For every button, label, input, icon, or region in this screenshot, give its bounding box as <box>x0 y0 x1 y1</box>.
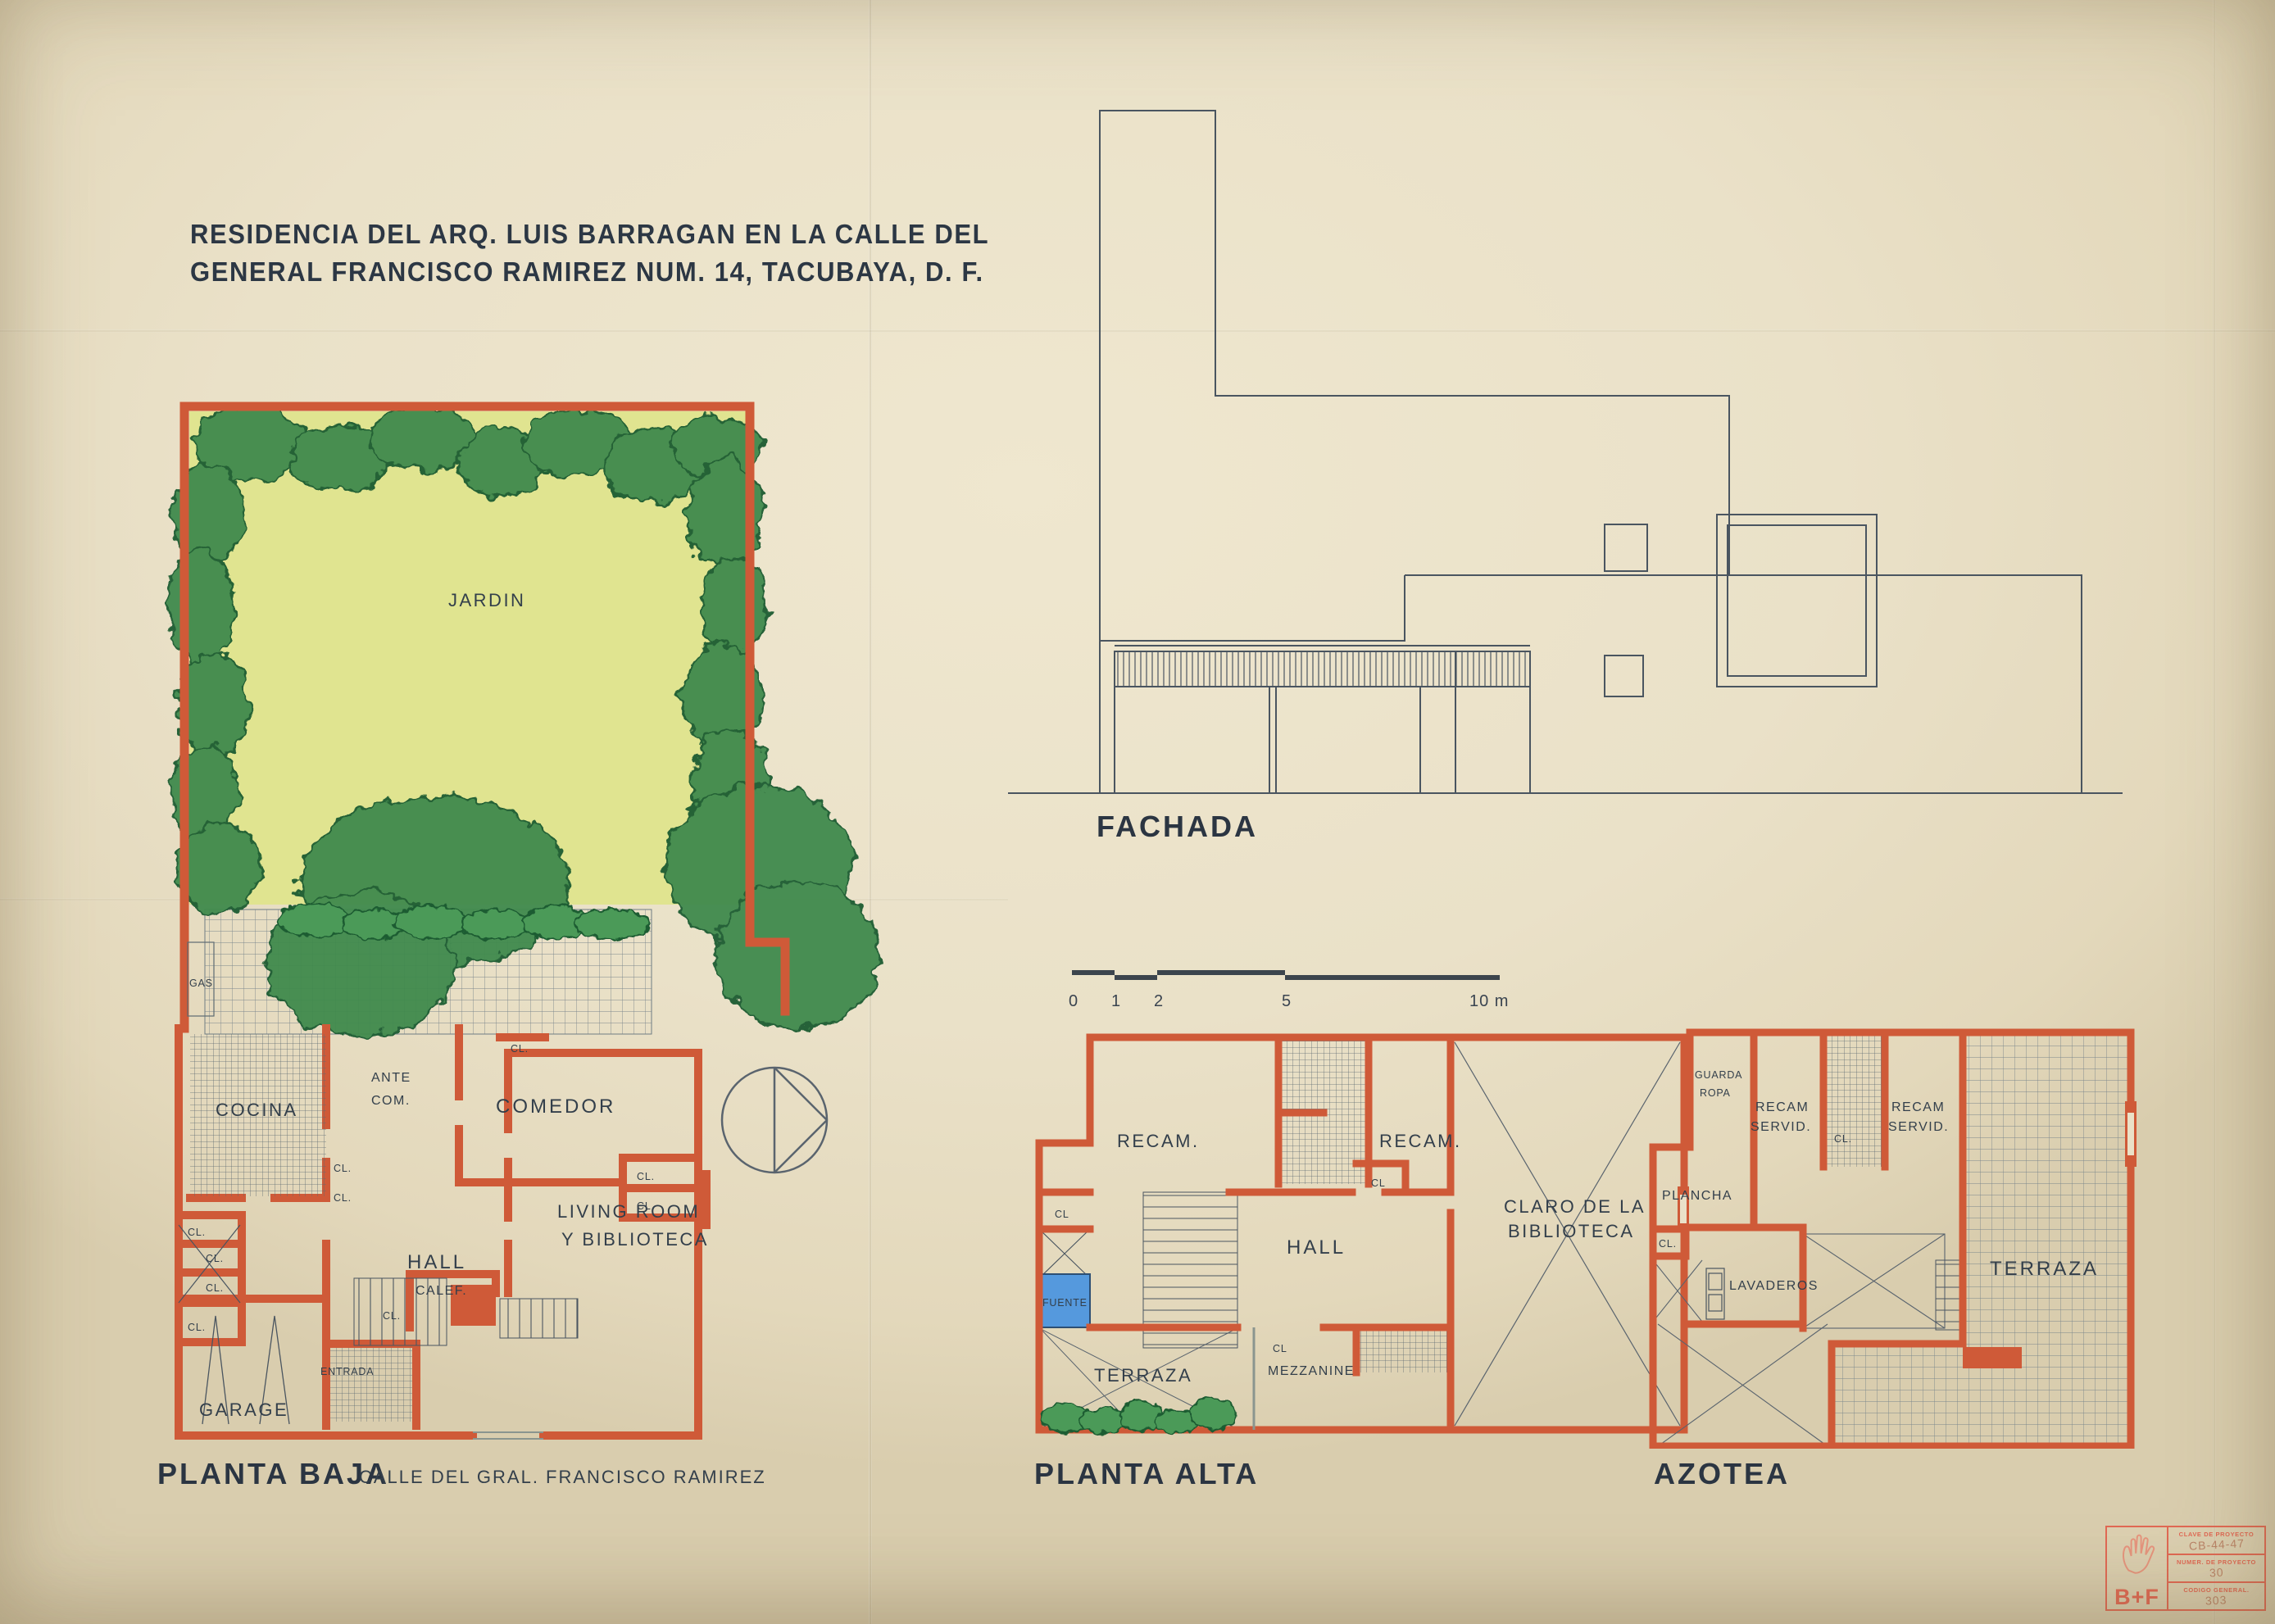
room-label-hall: HALL <box>407 1251 466 1273</box>
room-label-claro: BIBLIOTECA <box>1508 1221 1635 1241</box>
chimney-block <box>1963 1347 2022 1368</box>
large-window <box>1717 515 1877 687</box>
architect-stamp: B+F CLAVE DE PROYECTO CB-44-47 NUMER. DE… <box>2105 1526 2266 1611</box>
closet-label: CL. <box>188 1322 206 1333</box>
closet-label: CL. <box>334 1163 352 1174</box>
room-label-living: Y BIBLIOTECA <box>561 1229 709 1250</box>
scale-tick: 10 m <box>1469 992 1509 1010</box>
closet-label: CL. <box>206 1253 224 1264</box>
stamp-row: NUMER. DE PROYECTO 30 <box>2168 1555 2264 1583</box>
room-label-hall: HALL <box>1287 1236 1346 1259</box>
scale-tick: 2 <box>1154 992 1164 1010</box>
facade-outline <box>1100 111 2082 793</box>
room-label-guardaropa: GUARDA <box>1695 1069 1742 1081</box>
stamp-logo-cell: B+F <box>2107 1527 2168 1609</box>
room-label-claro: CLARO DE LA <box>1504 1196 1646 1217</box>
bath-hatch <box>1823 1036 1885 1167</box>
stamp-row: CODIGO GENERAL. 303 <box>2168 1583 2264 1609</box>
closet-label: CL <box>1371 1177 1386 1189</box>
roof-terrace-paving <box>1832 1347 1963 1443</box>
closet-label: CL. <box>637 1200 655 1212</box>
room-label-recam-servid: SERVID. <box>1751 1120 1811 1134</box>
entrada-floor-hatch <box>330 1348 412 1422</box>
fence-and-garage-doors <box>1115 646 1530 793</box>
room-label-comedor: COMEDOR <box>496 1096 615 1118</box>
stair <box>1936 1260 1962 1330</box>
room-label-mezzanine: MEZZANINE <box>1268 1364 1355 1378</box>
closet-label: CL. <box>334 1192 352 1204</box>
roof-plan: GUARDA ROPA RECAM SERVID. RECAM SERVID. … <box>1647 1023 2139 1449</box>
stamp-row-label: NUMER. DE PROYECTO <box>2177 1558 2256 1566</box>
scale-tick: 5 <box>1282 992 1292 1010</box>
terrace-shrubs <box>1042 1398 1237 1433</box>
street-label: CALLE DEL GRAL. FRANCISCO RAMIREZ <box>359 1467 766 1488</box>
title-line-1: RESIDENCIA DEL ARQ. LUIS BARRAGAN EN LA … <box>190 219 989 251</box>
stair <box>500 1299 578 1338</box>
door-slit <box>2127 1113 2134 1155</box>
small-window-lower <box>1605 655 1643 696</box>
room-label-gas: GAS <box>189 978 213 989</box>
closet-label: CL. <box>1834 1133 1852 1145</box>
roof-terrace-paving <box>1963 1036 2127 1443</box>
scale-tick: 1 <box>1111 992 1121 1010</box>
facade-elevation <box>1008 78 2147 807</box>
facade-label: FACHADA <box>1097 810 1258 844</box>
room-label-recam-servid: SERVID. <box>1888 1120 1949 1134</box>
hand-icon <box>2115 1530 2158 1576</box>
room-label-garage: GARAGE <box>199 1399 288 1420</box>
stamp-row-value: 303 <box>2205 1593 2227 1607</box>
azotea-label: AZOTEA <box>1654 1457 1790 1491</box>
room-label-lavaderos: LAVADEROS <box>1729 1279 1819 1293</box>
room-label-fuente: FUENTE <box>1042 1297 1088 1309</box>
room-label-recam-servid: RECAM <box>1891 1100 1945 1114</box>
title-block: RESIDENCIA DEL ARQ. LUIS BARRAGAN EN LA … <box>190 220 989 287</box>
room-label-terraza: TERRAZA <box>1990 1258 2099 1280</box>
stamp-row-label: CODIGO GENERAL. <box>2183 1586 2249 1594</box>
closet-label: CL. <box>206 1282 224 1294</box>
closet-label: CL. <box>637 1171 655 1182</box>
room-label-antecom: ANTE <box>371 1071 411 1085</box>
room-label-plancha: PLANCHA <box>1662 1189 1732 1203</box>
upper-floor-plan: RECAM. RECAM. HALL CLARO DE LA BIBLIOTEC… <box>1029 1023 1696 1445</box>
stamp-row-value: CB-44-47 <box>2188 1536 2245 1553</box>
room-label-recam: RECAM. <box>1117 1131 1200 1151</box>
street-door <box>473 1432 543 1439</box>
scale-bar: 0 1 2 5 10 m <box>1064 959 1523 1016</box>
small-window-upper <box>1605 524 1647 571</box>
stamp-row-value: 30 <box>2209 1565 2223 1579</box>
closet-label: CL. <box>383 1310 401 1322</box>
closet-label: CL. <box>188 1227 206 1238</box>
room-label-cocina: COCINA <box>216 1100 298 1120</box>
scale-tick: 0 <box>1069 992 1078 1010</box>
spiral-stair <box>1039 1229 1090 1278</box>
planta-baja-label: PLANTA BAJA <box>157 1457 389 1491</box>
bath-hatch <box>1356 1329 1451 1372</box>
room-label-terraza: TERRAZA <box>1094 1365 1192 1386</box>
title-line-2: GENERAL FRANCISCO RAMIREZ NUM. 14, TACUB… <box>190 256 989 288</box>
stamp-row: CLAVE DE PROYECTO CB-44-47 <box>2168 1527 2264 1555</box>
room-label-living: LIVING ROOM <box>557 1201 700 1222</box>
room-label-recam-servid: RECAM <box>1755 1100 1809 1114</box>
room-label-entrada: ENTRADA <box>320 1366 374 1377</box>
room-label-calef: CALEF. <box>415 1284 467 1298</box>
ground-floor-plan: JARDIN GAS COCINA ANTE COM. COMEDOR HALL… <box>152 392 889 1457</box>
blueprint-sheet: RESIDENCIA DEL ARQ. LUIS BARRAGAN EN LA … <box>0 0 2275 1624</box>
room-label-guardaropa: ROPA <box>1700 1087 1731 1099</box>
laundry-fixtures <box>1706 1268 1724 1319</box>
stamp-logo: B+F <box>2114 1586 2159 1608</box>
paper-crease <box>2213 0 2216 1624</box>
room-label-antecom: COM. <box>371 1094 411 1108</box>
room-label-recam: RECAM. <box>1379 1131 1462 1151</box>
room-label-jardin: JARDIN <box>448 590 525 610</box>
planta-alta-label: PLANTA ALTA <box>1034 1457 1259 1491</box>
closet-label: CL. <box>1659 1238 1677 1250</box>
closet-label: CL <box>1273 1343 1287 1354</box>
closet-label: CL. <box>511 1043 529 1055</box>
closet-label: CL <box>1055 1209 1069 1220</box>
